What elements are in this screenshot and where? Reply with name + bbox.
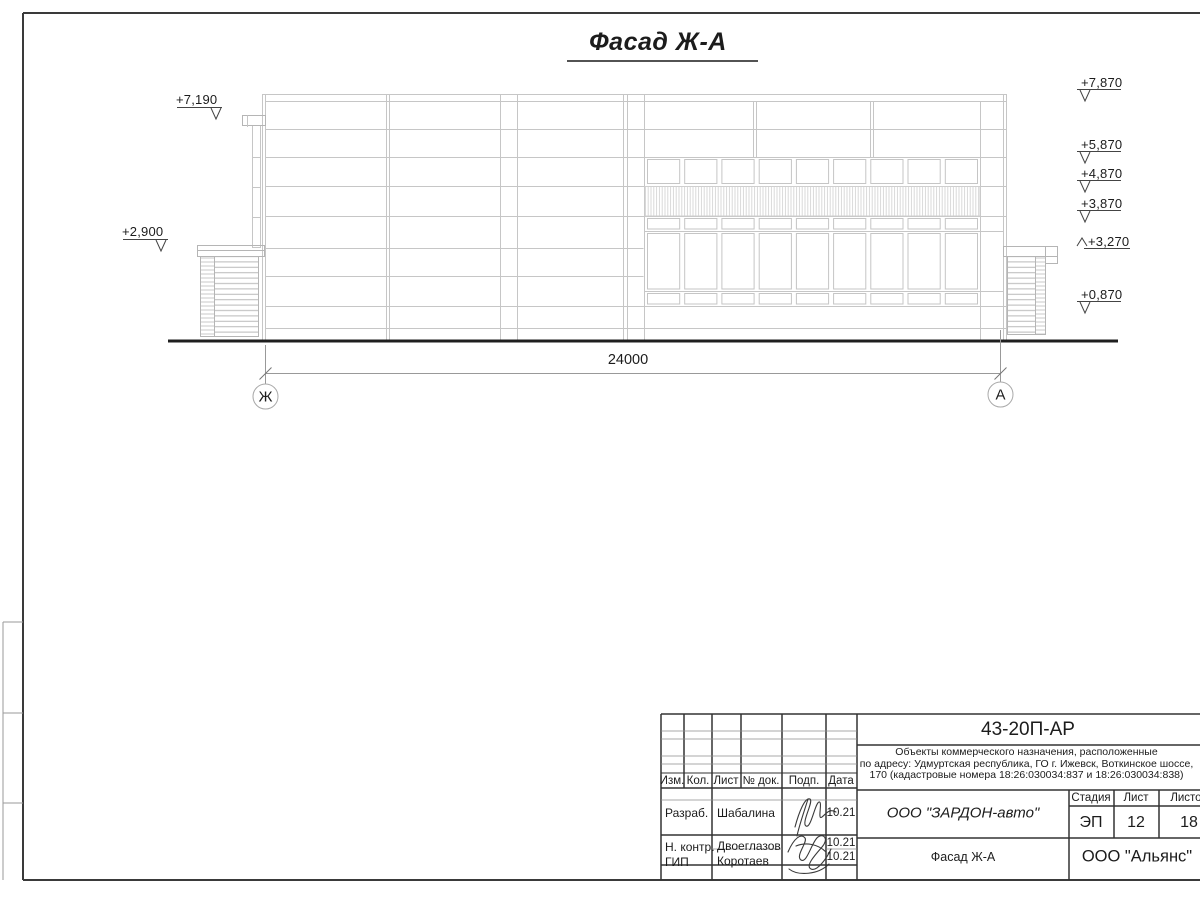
client-name: ООО "ЗАРДОН-авто" <box>887 805 1040 822</box>
sheets-total: 18 <box>1180 814 1198 832</box>
project-description-line: 170 (кадастровые номера 18:26:030034:837… <box>857 770 1196 782</box>
stage-value: ЭП <box>1080 814 1103 832</box>
row-name: Двоеглазов <box>717 839 781 853</box>
row-role: Разраб. <box>665 806 708 820</box>
axis-bubble-right: А <box>995 387 1005 404</box>
project-description: Объекты коммерческого назначения, распол… <box>857 747 1196 782</box>
dimension-label: 24000 <box>608 352 648 368</box>
title-block-thin-lines <box>661 731 857 849</box>
row-date: 10.21 <box>827 851 856 863</box>
elevation-mark: +4,870 <box>1081 166 1122 181</box>
col-header-kol: Кол. <box>687 775 710 787</box>
elevation-mark: +7,870 <box>1081 75 1122 90</box>
signature-dvoeglazov-korotaev <box>788 836 831 874</box>
right-louver-structure <box>1004 247 1058 335</box>
sheet-number: 12 <box>1127 814 1145 832</box>
stage-header: Стадия <box>1071 792 1110 804</box>
row-name: Шабалина <box>717 806 775 820</box>
row-name: Коротаев <box>717 854 769 868</box>
elevation-mark: +5,870 <box>1081 137 1122 152</box>
col-header-list: Лист <box>714 775 739 787</box>
elevation-mark: +3,870 <box>1081 196 1122 211</box>
drawing-sheet: Фасад Ж-А +7,190 +2,900 +7,870 +5,870 +4… <box>0 0 1200 900</box>
row-role: ГИП <box>665 855 689 869</box>
company-name: ООО "Альянс" <box>1082 848 1192 867</box>
sheets-header: Листов <box>1170 792 1200 804</box>
axis-bubble-left: Ж <box>259 389 273 406</box>
sheet-header: Лист <box>1124 792 1149 804</box>
elevation-mark: +0,870 <box>1081 287 1122 302</box>
row-date: 10.21 <box>827 807 856 819</box>
drawing-name: Фасад Ж-А <box>931 850 995 864</box>
elevation-mark: +3,270 <box>1088 234 1129 249</box>
col-header-data: Дата <box>828 775 853 787</box>
elevation-mark: +7,190 <box>176 92 217 107</box>
col-header-doc: № док. <box>743 775 780 787</box>
sheet-margin-table <box>3 622 23 880</box>
drawing-title: Фасад Ж-А <box>589 28 727 57</box>
project-description-line: Объекты коммерческого назначения, распол… <box>857 747 1196 759</box>
doc-number: 43-20П-АР <box>981 719 1075 741</box>
row-role: Н. контр. <box>665 840 715 854</box>
row-date: 10.21 <box>827 837 856 849</box>
left-louver-structure <box>198 246 265 337</box>
col-header-izm: Изм. <box>660 775 685 787</box>
elevation-mark: +2,900 <box>122 224 163 239</box>
col-header-podp: Подп. <box>789 775 820 787</box>
